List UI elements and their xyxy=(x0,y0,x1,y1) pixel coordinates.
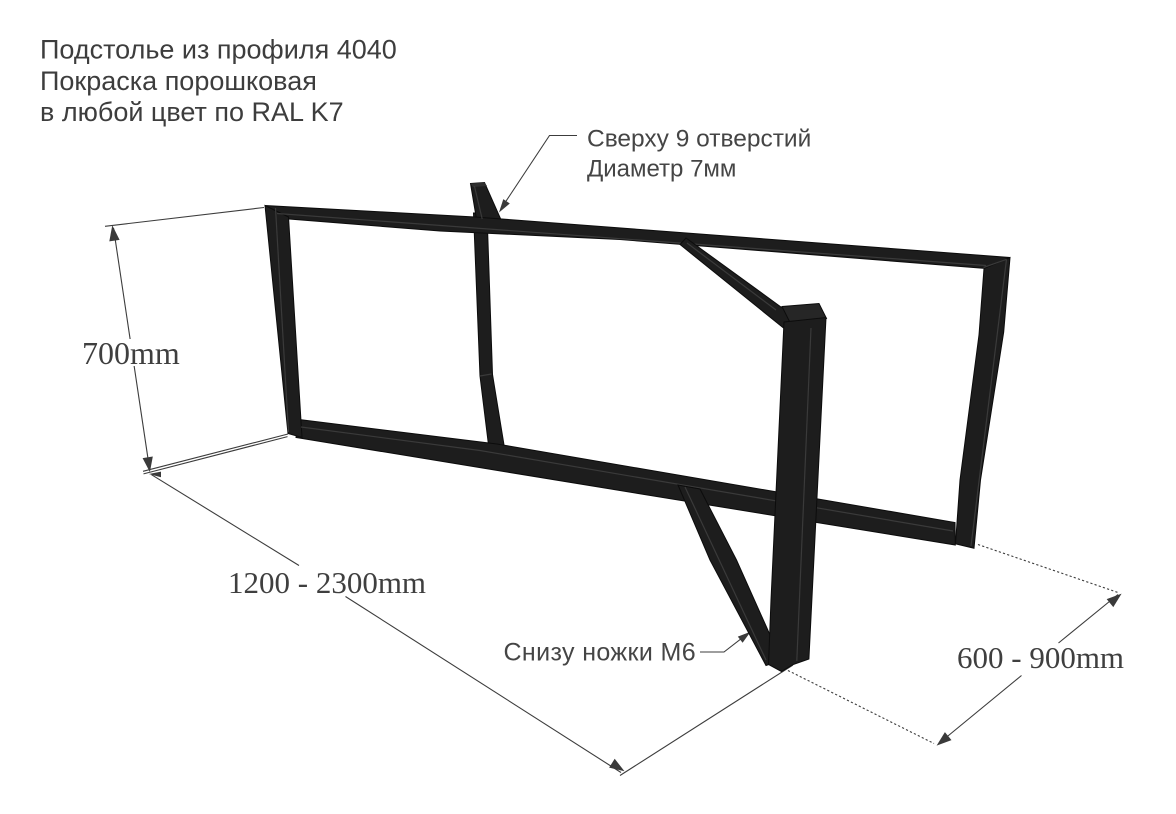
svg-text:Диаметр 7мм: Диаметр 7мм xyxy=(587,155,736,182)
svg-text:Подстолье из профиля 4040: Подстолье из профиля 4040 xyxy=(40,35,397,65)
svg-text:Сверху 9 отверстий: Сверху 9 отверстий xyxy=(587,126,811,153)
svg-text:Снизу ножки М6: Снизу ножки М6 xyxy=(504,639,697,667)
svg-text:в любой цвет по RAL K7: в любой цвет по RAL K7 xyxy=(40,97,344,127)
svg-text:Покраска порошковая: Покраска порошковая xyxy=(40,66,317,96)
svg-text:1200 - 2300mm: 1200 - 2300mm xyxy=(228,565,426,600)
svg-text:600 - 900mm: 600 - 900mm xyxy=(957,640,1124,675)
svg-text:700mm: 700mm xyxy=(82,335,180,371)
